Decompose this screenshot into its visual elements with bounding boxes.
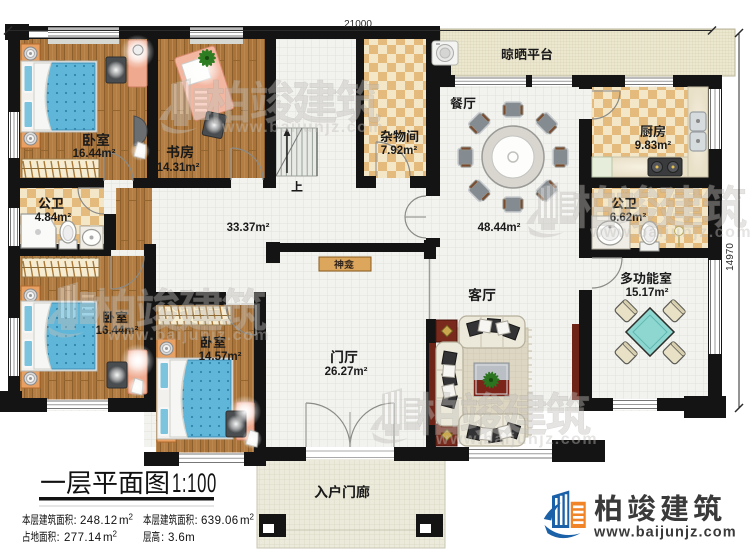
svg-text:48.44m²: 48.44m² xyxy=(478,222,521,234)
svg-text:m: m xyxy=(119,515,129,527)
svg-text:www.baijunjz.com: www.baijunjz.com xyxy=(435,431,598,448)
svg-text:2: 2 xyxy=(129,513,134,522)
svg-text:14.57m²: 14.57m² xyxy=(199,351,242,363)
svg-text::: : xyxy=(57,532,60,544)
svg-text:33.37m²: 33.37m² xyxy=(227,222,270,234)
svg-text:14970: 14970 xyxy=(725,243,736,271)
svg-text::: : xyxy=(161,532,164,544)
svg-text:m: m xyxy=(240,515,250,527)
svg-text:7.92m²: 7.92m² xyxy=(381,145,418,157)
svg-text:1:100: 1:100 xyxy=(172,468,217,498)
svg-text::: : xyxy=(195,515,198,527)
svg-text::: : xyxy=(74,515,77,527)
svg-text:4.84m²: 4.84m² xyxy=(35,212,72,224)
svg-text:2: 2 xyxy=(250,513,255,522)
svg-text:2: 2 xyxy=(113,530,118,539)
svg-text:277.14: 277.14 xyxy=(64,532,102,544)
svg-text:3.6m: 3.6m xyxy=(168,532,195,544)
svg-text:9.83m²: 9.83m² xyxy=(635,140,672,152)
svg-text:15.17m²: 15.17m² xyxy=(626,287,669,299)
svg-text:639.06: 639.06 xyxy=(201,515,239,527)
svg-text:www.baijunjz.com: www.baijunjz.com xyxy=(221,119,384,136)
svg-text:www.baijunjz.com: www.baijunjz.com xyxy=(593,525,737,541)
svg-text:www.baijunjz.com: www.baijunjz.com xyxy=(107,327,270,344)
svg-text:www.baijunjz.com: www.baijunjz.com xyxy=(589,224,750,241)
svg-text:26.27m²: 26.27m² xyxy=(325,366,368,378)
svg-text:14.31m²: 14.31m² xyxy=(157,162,200,174)
svg-text:248.12: 248.12 xyxy=(80,515,118,527)
svg-text:16.44m²: 16.44m² xyxy=(73,148,116,160)
svg-text:m: m xyxy=(103,532,113,544)
svg-text:21000: 21000 xyxy=(344,19,372,30)
